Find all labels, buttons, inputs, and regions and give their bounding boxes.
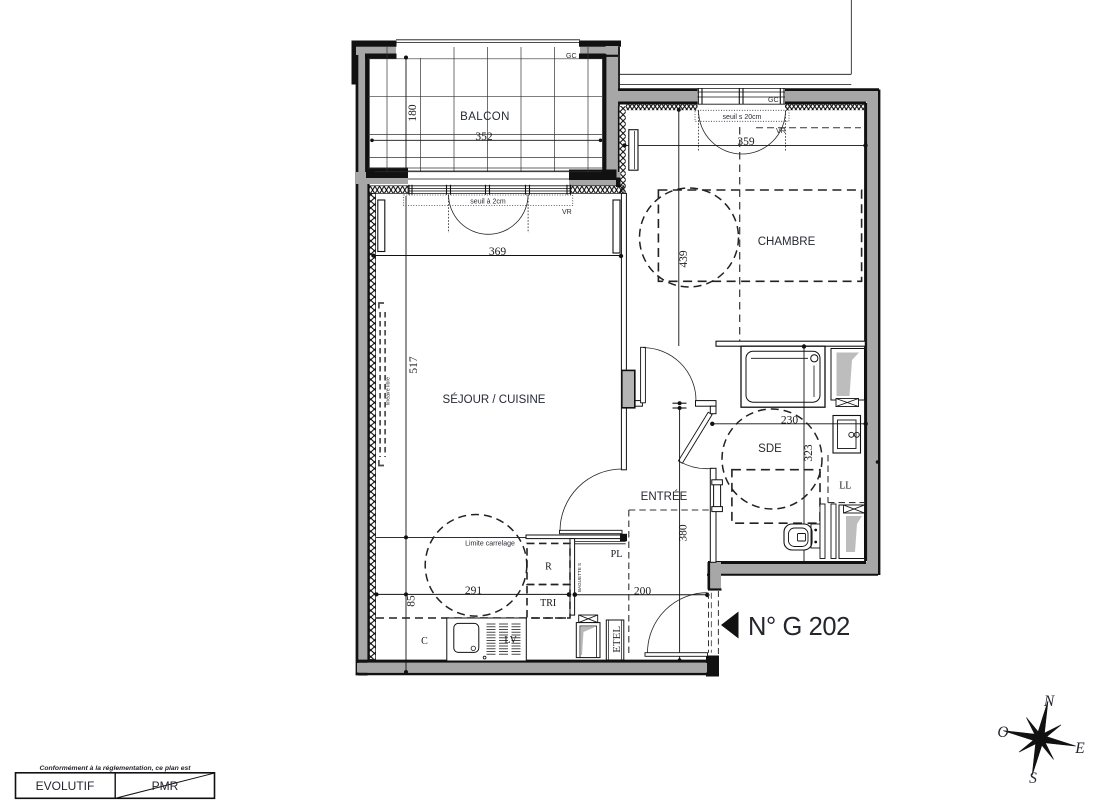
- svg-text:N: N: [1043, 693, 1056, 710]
- svg-text:PMR: PMR: [152, 779, 179, 793]
- svg-text:O: O: [997, 724, 1008, 741]
- svg-text:BAGUETTE S: BAGUETTE S: [577, 563, 582, 592]
- svg-text:LV: LV: [504, 635, 517, 646]
- svg-text:291: 291: [465, 585, 483, 597]
- svg-text:Limite carrelage: Limite carrelage: [465, 541, 515, 548]
- svg-text:GC: GC: [566, 53, 577, 60]
- svg-text:E: E: [1074, 740, 1085, 757]
- svg-text:ETEL: ETEL: [611, 626, 623, 653]
- svg-text:439: 439: [678, 250, 690, 268]
- svg-text:EVOLUTIF: EVOLUTIF: [36, 779, 95, 793]
- svg-text:seuil s 20cm: seuil s 20cm: [723, 114, 762, 121]
- svg-text:380: 380: [678, 524, 690, 542]
- svg-text:seuil à 2cm: seuil à 2cm: [470, 198, 506, 205]
- svg-text:SDE: SDE: [758, 443, 782, 455]
- svg-text:Conformément à la réglementati: Conformément à la réglementation, ce pla…: [39, 765, 191, 772]
- svg-text:S: S: [1029, 770, 1037, 787]
- svg-text:VR: VR: [776, 128, 786, 135]
- svg-text:180: 180: [407, 104, 419, 122]
- svg-text:323: 323: [803, 444, 815, 462]
- svg-text:BALCON: BALCON: [460, 111, 510, 123]
- svg-text:352: 352: [475, 131, 493, 143]
- svg-text:GC: GC: [768, 97, 779, 104]
- svg-text:SÉJOUR / CUISINE: SÉJOUR / CUISINE: [443, 393, 546, 406]
- svg-text:TRI: TRI: [540, 598, 556, 609]
- svg-text:CHAMBRE: CHAMBRE: [758, 236, 816, 248]
- svg-text:200: 200: [634, 585, 652, 597]
- svg-text:369: 369: [489, 246, 507, 258]
- svg-text:PL: PL: [611, 549, 623, 560]
- svg-text:R: R: [545, 561, 552, 572]
- svg-text:N° G 202: N° G 202: [748, 613, 850, 641]
- svg-text:linéaire libre: linéaire libre: [386, 377, 392, 405]
- svg-text:VR: VR: [562, 209, 572, 216]
- svg-text:ENTRÉE: ENTRÉE: [641, 490, 688, 503]
- svg-text:85: 85: [406, 595, 418, 607]
- svg-text:517: 517: [408, 356, 420, 374]
- svg-text:LL: LL: [839, 481, 851, 492]
- svg-text:230: 230: [781, 414, 799, 426]
- svg-text:C: C: [421, 636, 428, 647]
